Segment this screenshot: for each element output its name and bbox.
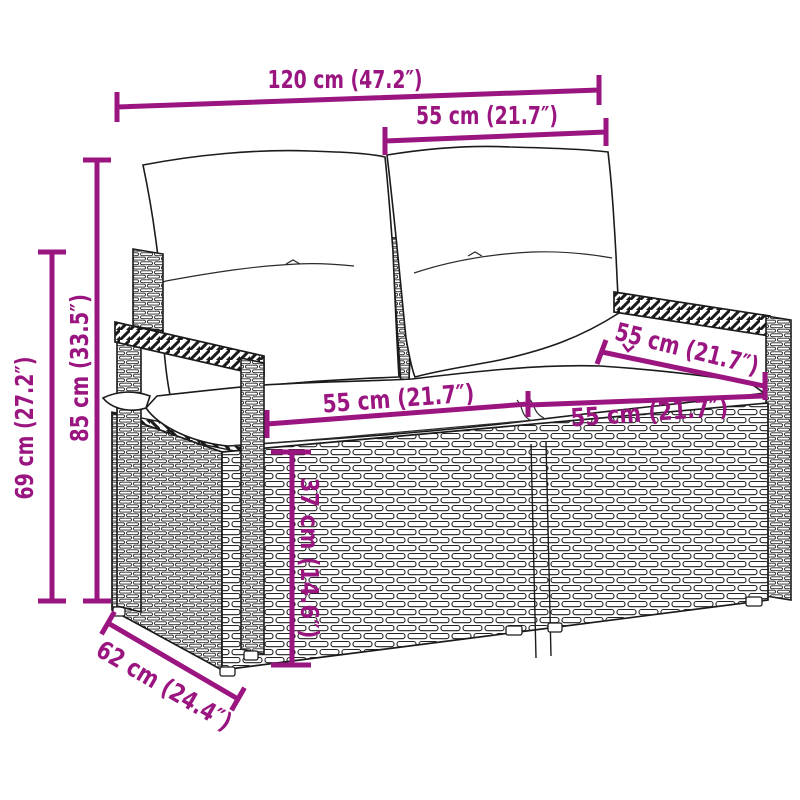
dim-backrest-width-label: 55 cm (21.7″)	[416, 101, 558, 130]
foot	[746, 597, 762, 606]
foot	[220, 667, 235, 676]
foot	[506, 626, 522, 635]
back-cushion-right	[387, 146, 619, 377]
dim-back-height-label: 85 cm (33.5″)	[65, 294, 94, 442]
left-armrest-front-post	[117, 326, 141, 612]
foot	[548, 623, 562, 632]
dim-arm-height: 69 cm (27.2″)	[10, 252, 66, 601]
back-left-corner-post	[133, 249, 163, 331]
diagram-canvas: 120 cm (47.2″) 55 cm (21.7″) 85 cm (33.5…	[0, 0, 800, 800]
foot	[244, 651, 258, 660]
product-dimension-diagram: 120 cm (47.2″) 55 cm (21.7″) 85 cm (33.5…	[0, 0, 800, 800]
back-cushion-left	[143, 151, 399, 395]
dim-back-height: 85 cm (33.5″)	[65, 160, 111, 601]
left-armrest-inner-post	[241, 358, 264, 654]
dim-total-width-label: 120 cm (47.2″)	[268, 65, 423, 94]
dim-arm-height-label: 69 cm (27.2″)	[10, 357, 39, 500]
seat-cushion-corner-flap	[103, 392, 150, 410]
dim-seat-height-label: 37 cm (14.6″)	[295, 478, 324, 639]
right-armrest-post	[766, 316, 791, 600]
